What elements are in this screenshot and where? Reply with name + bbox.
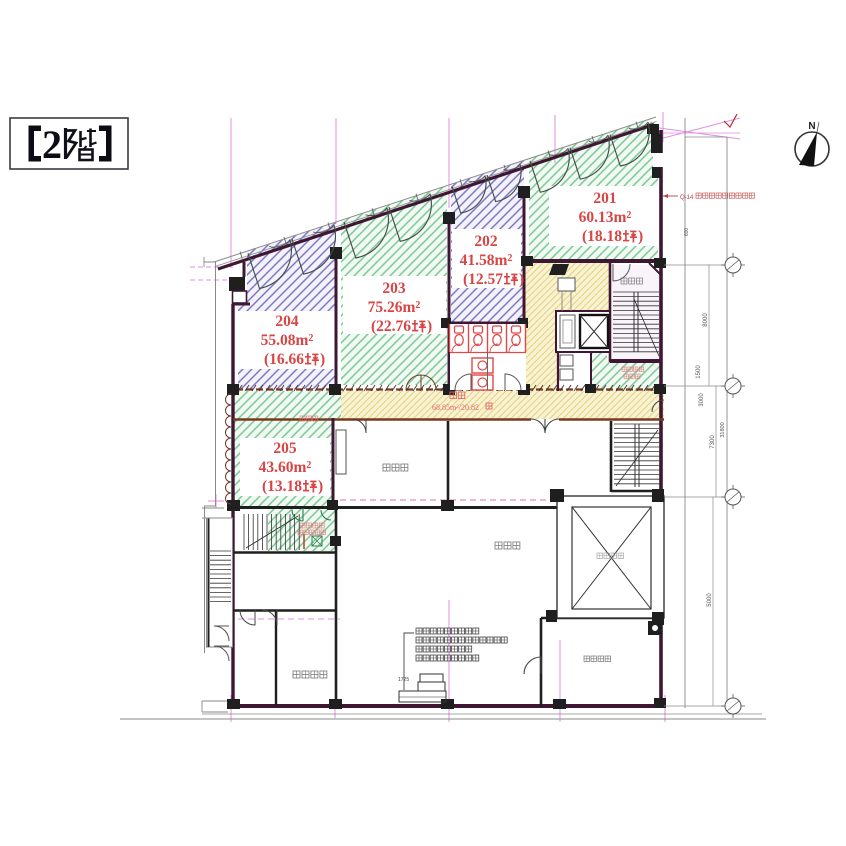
- svg-text:43.60m2: 43.60m2: [259, 459, 312, 476]
- svg-text:60.13m2: 60.13m2: [579, 209, 632, 226]
- svg-text:41.58m2: 41.58m2: [460, 252, 513, 269]
- svg-text:): ): [519, 271, 524, 288]
- svg-text:(16.66: (16.66: [264, 351, 304, 368]
- svg-text:55.08m2: 55.08m2: [261, 332, 314, 349]
- svg-text:202: 202: [474, 233, 498, 250]
- svg-text:): ): [318, 478, 323, 495]
- svg-text:(22.76: (22.76: [371, 318, 411, 335]
- svg-text:201: 201: [593, 190, 616, 207]
- svg-text:75.26m2: 75.26m2: [368, 299, 421, 316]
- svg-text:): ): [320, 351, 325, 368]
- svg-text:204: 204: [275, 313, 299, 330]
- svg-text:600: 600: [684, 228, 690, 237]
- svg-text:(18.18: (18.18: [582, 228, 622, 245]
- svg-text:Q-14: Q-14: [680, 195, 694, 201]
- svg-text:5000: 5000: [707, 593, 713, 607]
- svg-text:(12.57: (12.57: [463, 271, 503, 288]
- svg-text:): ): [427, 318, 432, 335]
- svg-text:31800: 31800: [720, 422, 726, 437]
- svg-text:N: N: [808, 121, 815, 132]
- svg-text:1500: 1500: [696, 365, 702, 379]
- svg-text:(13.18: (13.18: [262, 478, 302, 495]
- svg-text:68.85m2/20.82: 68.85m2/20.82: [432, 403, 479, 412]
- svg-text:2: 2: [42, 122, 62, 167]
- svg-text:8000: 8000: [703, 313, 709, 327]
- svg-text:3000: 3000: [699, 393, 705, 407]
- svg-text:205: 205: [273, 440, 297, 457]
- svg-text:7300: 7300: [710, 435, 716, 449]
- svg-text:203: 203: [382, 280, 406, 297]
- svg-text:): ): [638, 228, 643, 245]
